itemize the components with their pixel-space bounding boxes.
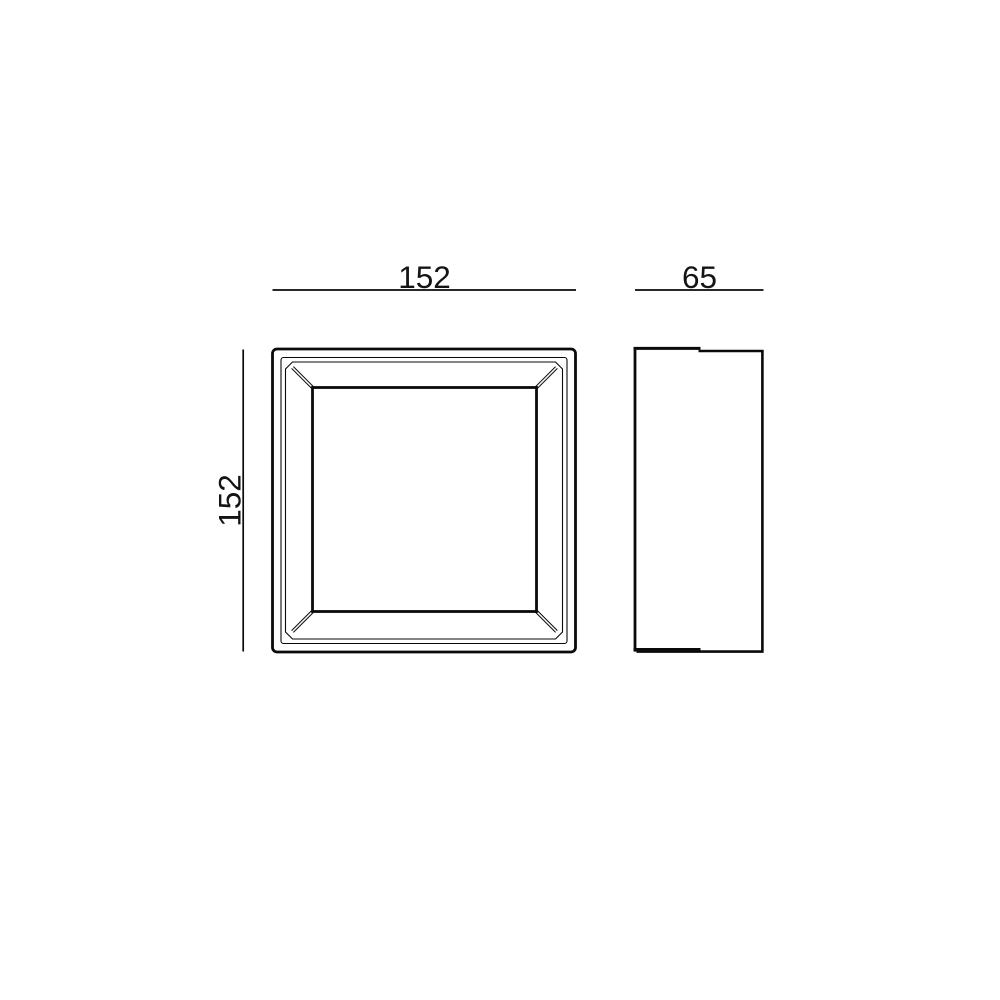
drawing-canvas: 152 65 152 [0, 0, 1000, 1000]
dimension-side-depth: 65 [635, 259, 764, 295]
front-view [273, 349, 576, 652]
dimension-front-height-label: 152 [212, 474, 248, 527]
front-rim-line-1 [281, 358, 567, 644]
dimension-front-width-label: 152 [398, 259, 451, 295]
front-rim-line-2 [286, 362, 563, 639]
front-bevel-top-right [536, 367, 558, 389]
technical-drawing: 152 65 152 [0, 0, 1000, 1000]
dimension-side-depth-label: 65 [682, 259, 717, 295]
front-bevel-bottom-left [292, 611, 314, 633]
side-view [634, 348, 764, 651]
front-bevel-bottom-right [536, 611, 558, 633]
front-outer-frame [273, 349, 576, 652]
dimension-front-width: 152 [273, 259, 577, 295]
dimension-front-height: 152 [212, 350, 248, 652]
front-inner-lens [313, 388, 537, 612]
front-bevel-top-left [292, 367, 314, 389]
